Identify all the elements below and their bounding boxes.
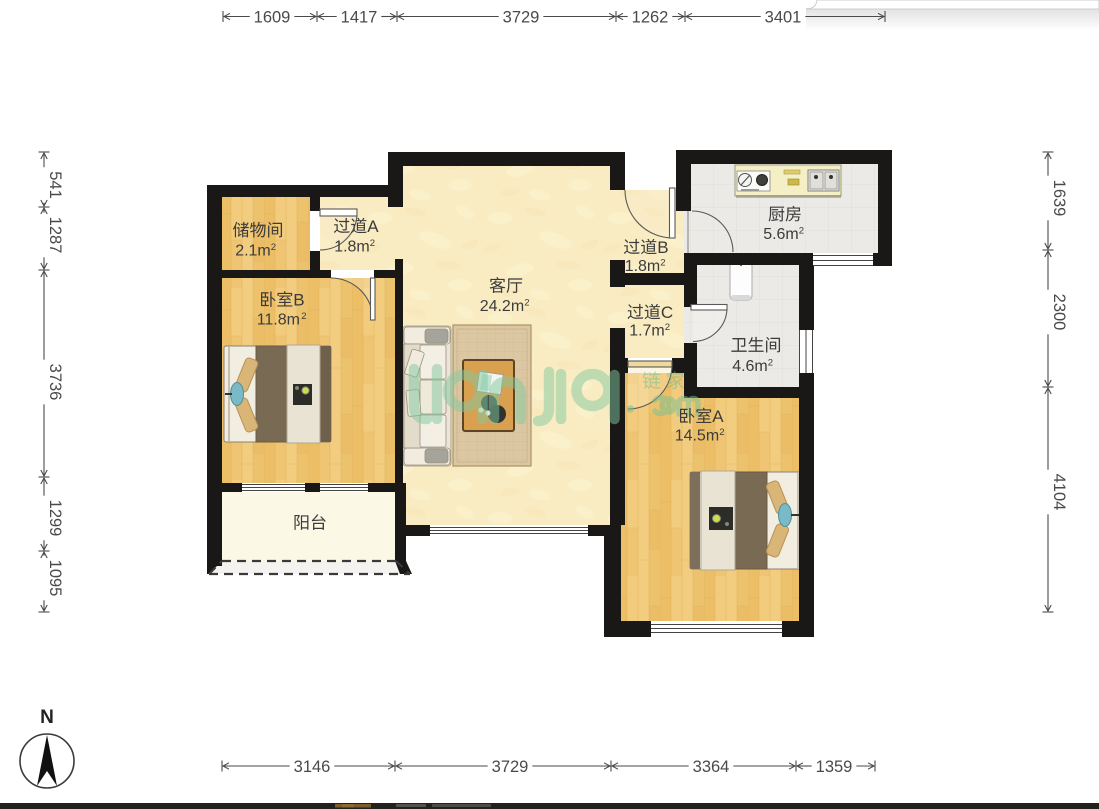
svg-text:1.8m: 1.8m — [625, 258, 661, 275]
svg-text:2.1m: 2.1m — [235, 242, 271, 259]
svg-text:2: 2 — [799, 226, 804, 237]
svg-text:N: N — [40, 707, 54, 728]
svg-text:2: 2 — [301, 311, 306, 322]
svg-text:14.5m: 14.5m — [675, 427, 719, 444]
svg-text:2300: 2300 — [1050, 294, 1068, 331]
svg-text:3401: 3401 — [765, 8, 802, 26]
svg-text:11.8m: 11.8m — [257, 311, 300, 328]
svg-text:3146: 3146 — [294, 758, 331, 776]
svg-text:B: B — [657, 238, 668, 257]
svg-text:3729: 3729 — [492, 758, 529, 776]
svg-text:2: 2 — [370, 238, 375, 249]
svg-text:3736: 3736 — [46, 364, 64, 401]
svg-text:A: A — [367, 217, 379, 236]
svg-text:4.6m: 4.6m — [732, 358, 768, 375]
svg-text:1262: 1262 — [632, 8, 669, 26]
svg-text:1.8m: 1.8m — [334, 238, 370, 255]
svg-text:24.2m: 24.2m — [480, 298, 524, 315]
svg-text:1359: 1359 — [816, 758, 853, 776]
svg-text:3729: 3729 — [503, 8, 540, 26]
svg-text:5.6m: 5.6m — [763, 226, 799, 243]
svg-text:4104: 4104 — [1050, 474, 1068, 511]
svg-text:3364: 3364 — [693, 758, 730, 776]
svg-text:B: B — [293, 291, 304, 310]
svg-text:2: 2 — [768, 358, 773, 369]
svg-text:2: 2 — [719, 427, 724, 438]
svg-text:2: 2 — [665, 322, 670, 333]
svg-text:1299: 1299 — [46, 500, 64, 537]
svg-text:2: 2 — [271, 242, 276, 253]
svg-text:A: A — [712, 407, 724, 426]
svg-text:C: C — [661, 303, 673, 322]
svg-text:1417: 1417 — [341, 8, 378, 26]
svg-text:541: 541 — [46, 171, 64, 199]
svg-text:1095: 1095 — [46, 560, 64, 597]
svg-text:1609: 1609 — [254, 8, 291, 26]
svg-text:1639: 1639 — [1050, 180, 1068, 217]
svg-text:1.7m: 1.7m — [629, 322, 665, 339]
svg-text:2: 2 — [660, 258, 665, 269]
svg-text:2: 2 — [524, 298, 529, 309]
svg-text:1287: 1287 — [46, 217, 64, 254]
